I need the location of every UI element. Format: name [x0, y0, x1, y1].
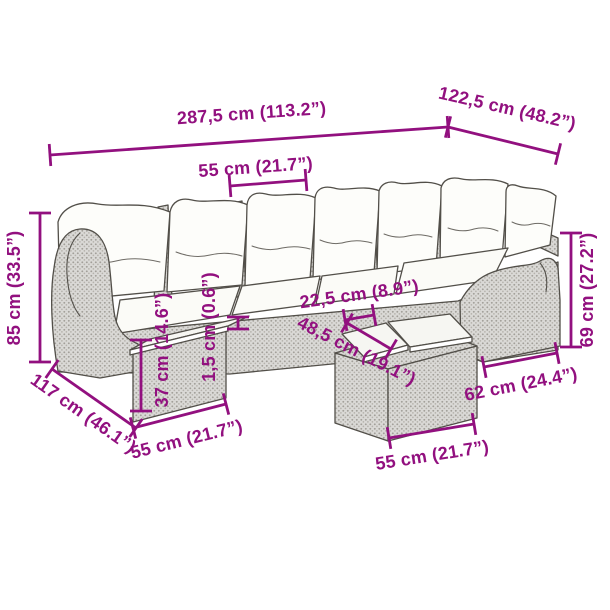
dimension-label-overall-height: 85 cm (33.5”) — [4, 231, 24, 346]
dimension-arm-height: 69 cm (27.2”) — [560, 233, 597, 348]
dimension-label-overall-width: 287,5 cm (113.2”) — [176, 98, 327, 128]
dimension-overall-width: 287,5 cm (113.2”) — [49, 98, 449, 166]
dimension-label-top-thickness: 1,5 cm (0.6”) — [199, 272, 219, 382]
dimension-label-return-width: 122,5 cm (48.2”) — [437, 83, 578, 134]
dimension-label-arm-height: 69 cm (27.2”) — [577, 233, 597, 348]
diagram-svg: 287,5 cm (113.2”)122,5 cm (48.2”)55 cm (… — [0, 0, 610, 610]
dimension-label-ottoman-width: 55 cm (21.7”) — [374, 436, 490, 474]
dimension-return-width: 122,5 cm (48.2”) — [437, 83, 578, 165]
dimension-overall-height: 85 cm (33.5”) — [4, 213, 51, 362]
dimension-label-depth: 117 cm (46.1”) — [27, 369, 140, 456]
dimension-label-arm-width: 62 cm (24.4”) — [463, 363, 579, 405]
dimension-seat-width: 55 cm (21.7”) — [198, 153, 314, 197]
dimension-label-table-width: 55 cm (21.7”) — [128, 416, 244, 463]
product-dimension-diagram: 287,5 cm (113.2”)122,5 cm (48.2”)55 cm (… — [0, 0, 610, 610]
dimension-label-table-height: 37 cm (14.6”) — [152, 293, 172, 408]
dimension-label-seat-width: 55 cm (21.7”) — [198, 153, 314, 181]
